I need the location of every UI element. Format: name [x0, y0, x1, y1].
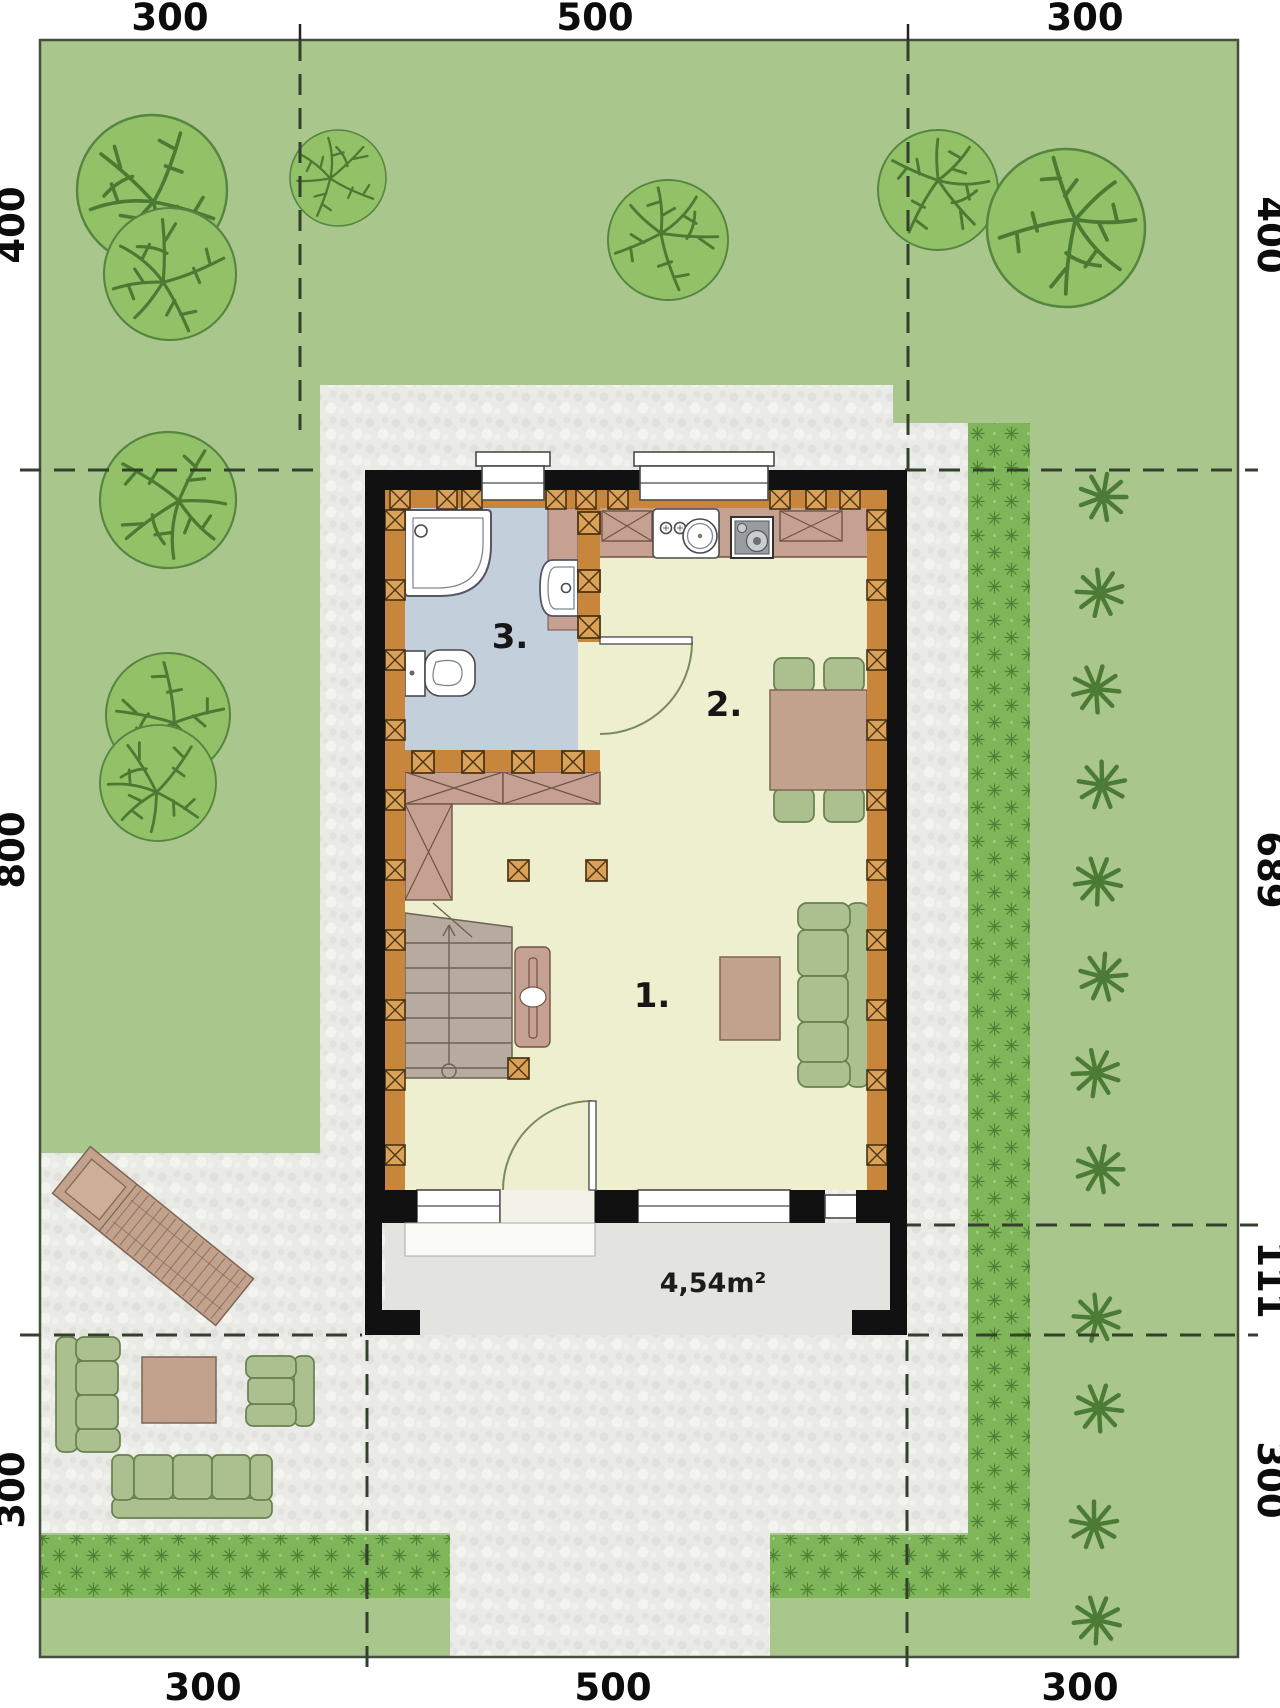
dim-bottom-east: 300: [1041, 1666, 1118, 1708]
kitchen-counter: [600, 508, 867, 558]
front-window-corner: [825, 1195, 860, 1218]
west-wall: [365, 470, 385, 1223]
timber-tie-icon: [867, 720, 887, 740]
hedge-east: [968, 423, 1030, 1598]
east-wall: [887, 470, 907, 1223]
toilet-icon: [405, 650, 475, 696]
room-label-bathroom: 3.: [492, 617, 529, 657]
dining-chair: [824, 788, 864, 822]
dim-bottom-west: 300: [164, 1666, 241, 1708]
paved-walkway: [450, 1533, 770, 1658]
coffee-table: [720, 957, 780, 1040]
timber-tie-icon: [385, 650, 405, 670]
timber-tie-icon: [867, 1145, 887, 1165]
timber-tie-icon: [867, 580, 887, 600]
site-plan-drawing: 4,54m² 1. 2. 3.: [0, 0, 1280, 1708]
porch: 4,54m²: [365, 1223, 907, 1335]
dim-left-400: 400: [0, 186, 33, 263]
timber-tie-icon: [512, 751, 534, 773]
bathtub-icon: [405, 510, 491, 596]
dim-right-400: 400: [1249, 196, 1280, 273]
kitchen-cabinet-left: [602, 511, 652, 541]
terrace-area-label: 4,54m²: [660, 1268, 767, 1299]
staircase: [405, 903, 512, 1078]
timber-tie-icon: [385, 790, 405, 810]
dim-left-300: 300: [0, 1451, 33, 1528]
timber-tie-icon: [576, 489, 596, 509]
timber-tie-icon: [412, 751, 434, 773]
timber-tie-icon: [840, 489, 860, 509]
timber-tie-icon: [867, 650, 887, 670]
outdoor-loveseat: [56, 1337, 120, 1452]
dim-right-111: 111: [1249, 1241, 1280, 1318]
post-icon: [508, 1058, 529, 1079]
timber-tie-icon: [578, 512, 600, 534]
north-wall: [365, 470, 907, 490]
dining-table: [770, 690, 867, 790]
timber-tie-icon: [462, 489, 482, 509]
timber-tie-icon: [562, 751, 584, 773]
kitchen-sink: [653, 509, 719, 558]
timber-tie-icon: [867, 1070, 887, 1090]
front-door-opening: [500, 1190, 595, 1223]
dim-right-300: 300: [1249, 1441, 1280, 1518]
timber-tie-icon: [867, 1000, 887, 1020]
hedge-south-east: [770, 1535, 1030, 1598]
south-wall: [365, 1190, 907, 1223]
porch-post-east: [852, 1310, 907, 1335]
dim-top-west: 300: [131, 0, 208, 39]
timber-tie-icon: [578, 570, 600, 592]
timber-tie-icon: [867, 510, 887, 530]
timber-tie-icon: [867, 930, 887, 950]
outdoor-sofa: [112, 1455, 272, 1518]
room-label-kitchen: 2.: [706, 685, 743, 725]
timber-tie-icon: [867, 860, 887, 880]
outdoor-armchair: [246, 1356, 314, 1426]
stove-icon: [731, 517, 773, 558]
timber-tie-icon: [385, 580, 405, 600]
timber-tie-icon: [385, 1145, 405, 1165]
dining-chair: [824, 658, 864, 692]
site-plan-page: 4,54m² 1. 2. 3.: [0, 0, 1280, 1708]
porch-post-west: [365, 1310, 420, 1335]
dim-right-689: 689: [1249, 831, 1280, 908]
outdoor-table: [142, 1357, 216, 1423]
timber-tie-icon: [385, 1070, 405, 1090]
timber-tie-icon: [770, 489, 790, 509]
timber-tie-icon: [385, 510, 405, 530]
timber-tie-icon: [867, 790, 887, 810]
timber-tie-icon: [437, 489, 457, 509]
timber-tie-icon: [462, 751, 484, 773]
dining-chair: [774, 788, 814, 822]
timber-tie-icon: [546, 489, 566, 509]
timber-tie-icon: [385, 860, 405, 880]
window-sill: [476, 452, 550, 466]
dim-top-center: 500: [556, 0, 633, 39]
timber-tie-icon: [385, 930, 405, 950]
timber-tie-icon: [806, 489, 826, 509]
post-icon: [508, 860, 529, 881]
timber-tie-icon: [385, 720, 405, 740]
tv-bench: [515, 947, 550, 1047]
house: 4,54m² 1. 2. 3.: [365, 452, 907, 1335]
dining-chair: [774, 658, 814, 692]
sofa: [798, 903, 870, 1087]
dim-top-east: 300: [1046, 0, 1123, 39]
kitchen-cabinet-right: [780, 511, 842, 541]
dim-left-800: 800: [0, 811, 33, 888]
post-icon: [586, 860, 607, 881]
porch-step: [405, 1223, 595, 1256]
window-sill: [634, 452, 774, 466]
timber-tie-icon: [390, 489, 410, 509]
room-label-living: 1.: [634, 976, 671, 1016]
timber-tie-icon: [385, 1000, 405, 1020]
timber-tie-icon: [578, 616, 600, 638]
timber-tie-icon: [608, 489, 628, 509]
dim-bottom-center: 500: [574, 1666, 651, 1708]
washbasin-icon: [540, 560, 578, 616]
hedge-south-west: [40, 1535, 450, 1598]
